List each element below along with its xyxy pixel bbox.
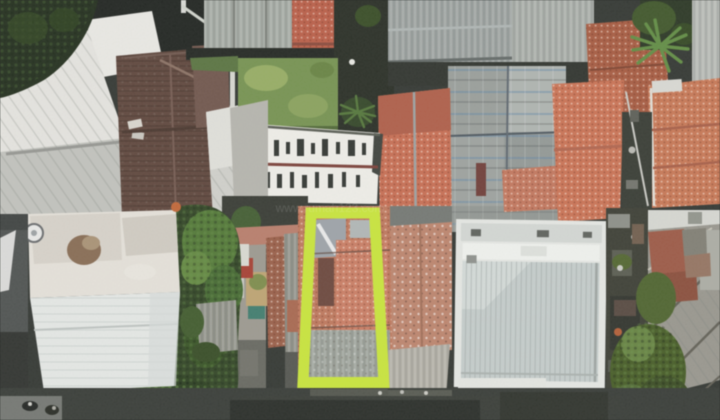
svg-text:www.rumah123.com: www.rumah123.com	[275, 201, 385, 215]
